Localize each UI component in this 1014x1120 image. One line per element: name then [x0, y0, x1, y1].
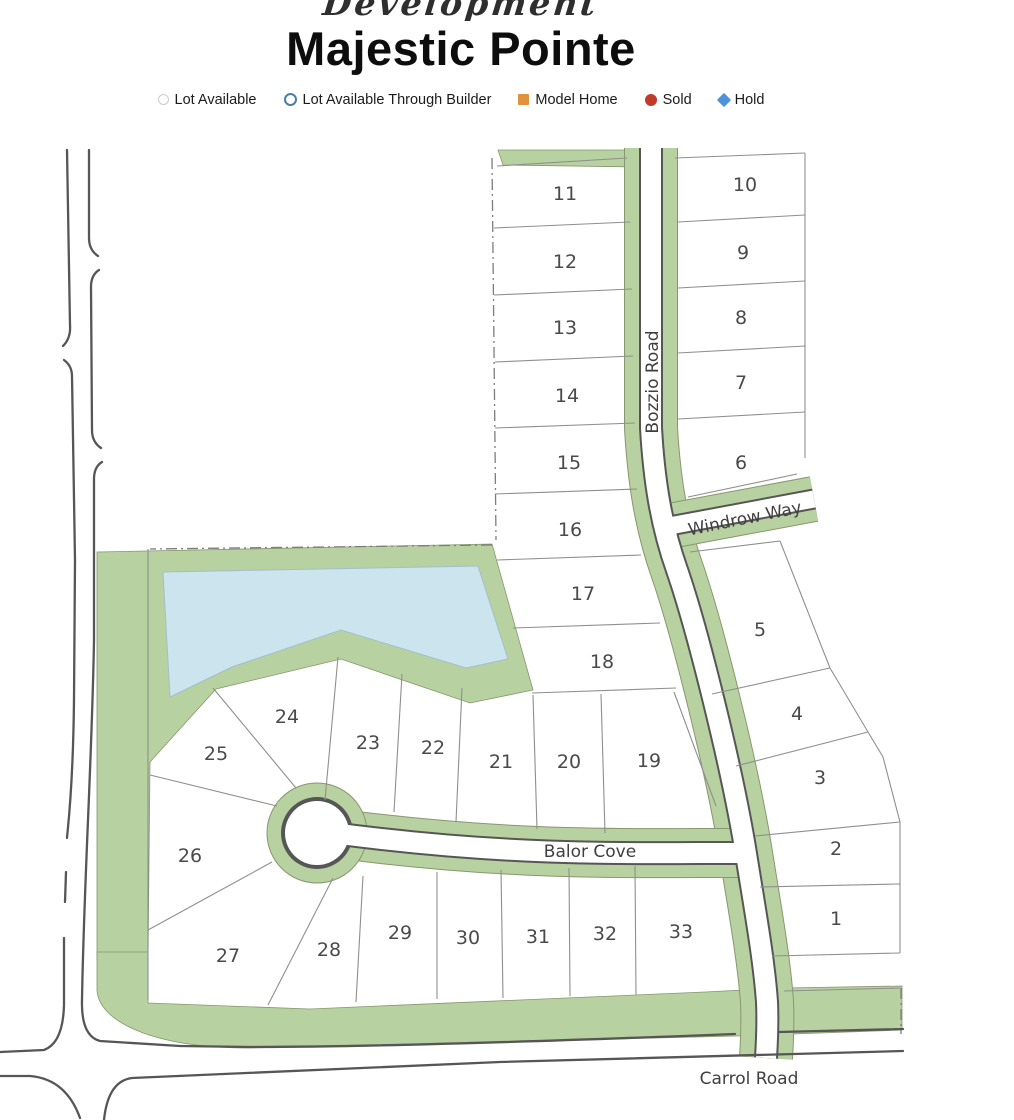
lot-18[interactable]: 18: [590, 651, 614, 673]
lot-7[interactable]: 7: [735, 372, 747, 394]
lot-24[interactable]: 24: [275, 706, 299, 728]
lot-31[interactable]: 31: [526, 926, 550, 948]
lot-4[interactable]: 4: [791, 703, 803, 725]
legend-item-sold: Sold: [645, 92, 692, 108]
road-label-balor: Balor Cove: [544, 842, 636, 862]
legend-item-builder: Lot Available Through Builder: [284, 92, 492, 108]
lot-2[interactable]: 2: [830, 838, 842, 860]
lot-9[interactable]: 9: [737, 242, 749, 264]
lot-5[interactable]: 5: [754, 619, 766, 641]
legend-item-model: Model Home: [518, 92, 617, 108]
model-home-icon: [518, 94, 529, 105]
lot-26[interactable]: 26: [178, 845, 202, 867]
legend-item-available: Lot Available: [158, 92, 257, 108]
legend-label: Hold: [735, 92, 765, 108]
road-label-carrol: Carrol Road: [700, 1069, 799, 1089]
hold-icon: [717, 93, 731, 107]
legend-label: Sold: [663, 92, 692, 108]
plat-map-page: Development Majestic Pointe Lot Availabl…: [0, 0, 1014, 1120]
legend-label: Lot Available: [175, 92, 257, 108]
lot-3[interactable]: 3: [814, 767, 826, 789]
header: Development Majestic Pointe Lot Availabl…: [0, 0, 1014, 108]
plat-map: Bozzio Road Windrow Way Balor Cove Carro…: [0, 0, 1014, 1120]
lot-19[interactable]: 19: [637, 750, 661, 772]
lot-6[interactable]: 6: [735, 452, 747, 474]
developer-logo-text: Development: [321, 0, 601, 21]
lot-available-icon: [158, 94, 169, 105]
lot-13[interactable]: 13: [553, 317, 577, 339]
lot-27[interactable]: 27: [216, 945, 240, 967]
lot-30[interactable]: 30: [456, 927, 480, 949]
legend-label: Lot Available Through Builder: [303, 92, 492, 108]
lot-12[interactable]: 12: [553, 251, 577, 273]
lot-33[interactable]: 33: [669, 921, 693, 943]
lot-11[interactable]: 11: [553, 183, 577, 205]
lot-32[interactable]: 32: [593, 923, 617, 945]
lot-29[interactable]: 29: [388, 922, 412, 944]
lot-16[interactable]: 16: [558, 519, 582, 541]
lot-22[interactable]: 22: [421, 737, 445, 759]
legend-label: Model Home: [535, 92, 617, 108]
page-title: Majestic Pointe: [0, 23, 922, 75]
lot-8[interactable]: 8: [735, 307, 747, 329]
lot-15[interactable]: 15: [557, 452, 581, 474]
road-label-bozzio: Bozzio Road: [643, 330, 663, 433]
sold-icon: [645, 94, 657, 106]
lot-10[interactable]: 10: [733, 174, 757, 196]
lot-17[interactable]: 17: [571, 583, 595, 605]
lot-28[interactable]: 28: [317, 939, 341, 961]
lot-23[interactable]: 23: [356, 732, 380, 754]
developer-logo-clipped: Development: [0, 0, 922, 21]
lot-14[interactable]: 14: [555, 385, 579, 407]
legend-item-hold: Hold: [719, 92, 765, 108]
lot-25[interactable]: 25: [204, 743, 228, 765]
lot-available-builder-icon: [284, 93, 297, 106]
lot-20[interactable]: 20: [557, 751, 581, 773]
lot-1[interactable]: 1: [830, 908, 842, 930]
lot-21[interactable]: 21: [489, 751, 513, 773]
legend: Lot Available Lot Available Through Buil…: [0, 92, 922, 108]
